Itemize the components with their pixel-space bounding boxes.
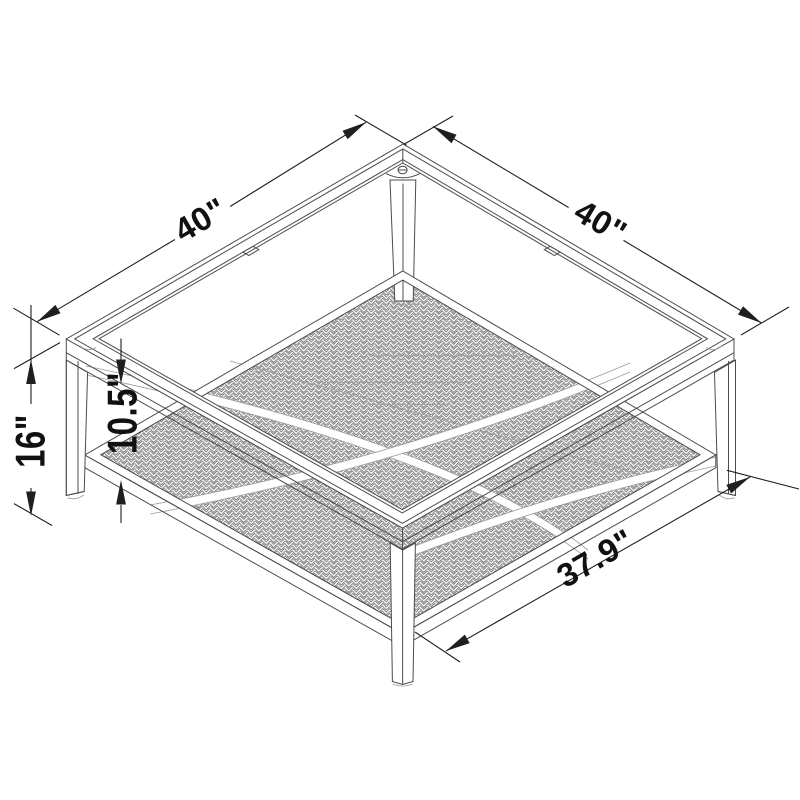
svg-text:10.5": 10.5" (99, 372, 145, 454)
svg-text:16": 16" (7, 414, 53, 468)
